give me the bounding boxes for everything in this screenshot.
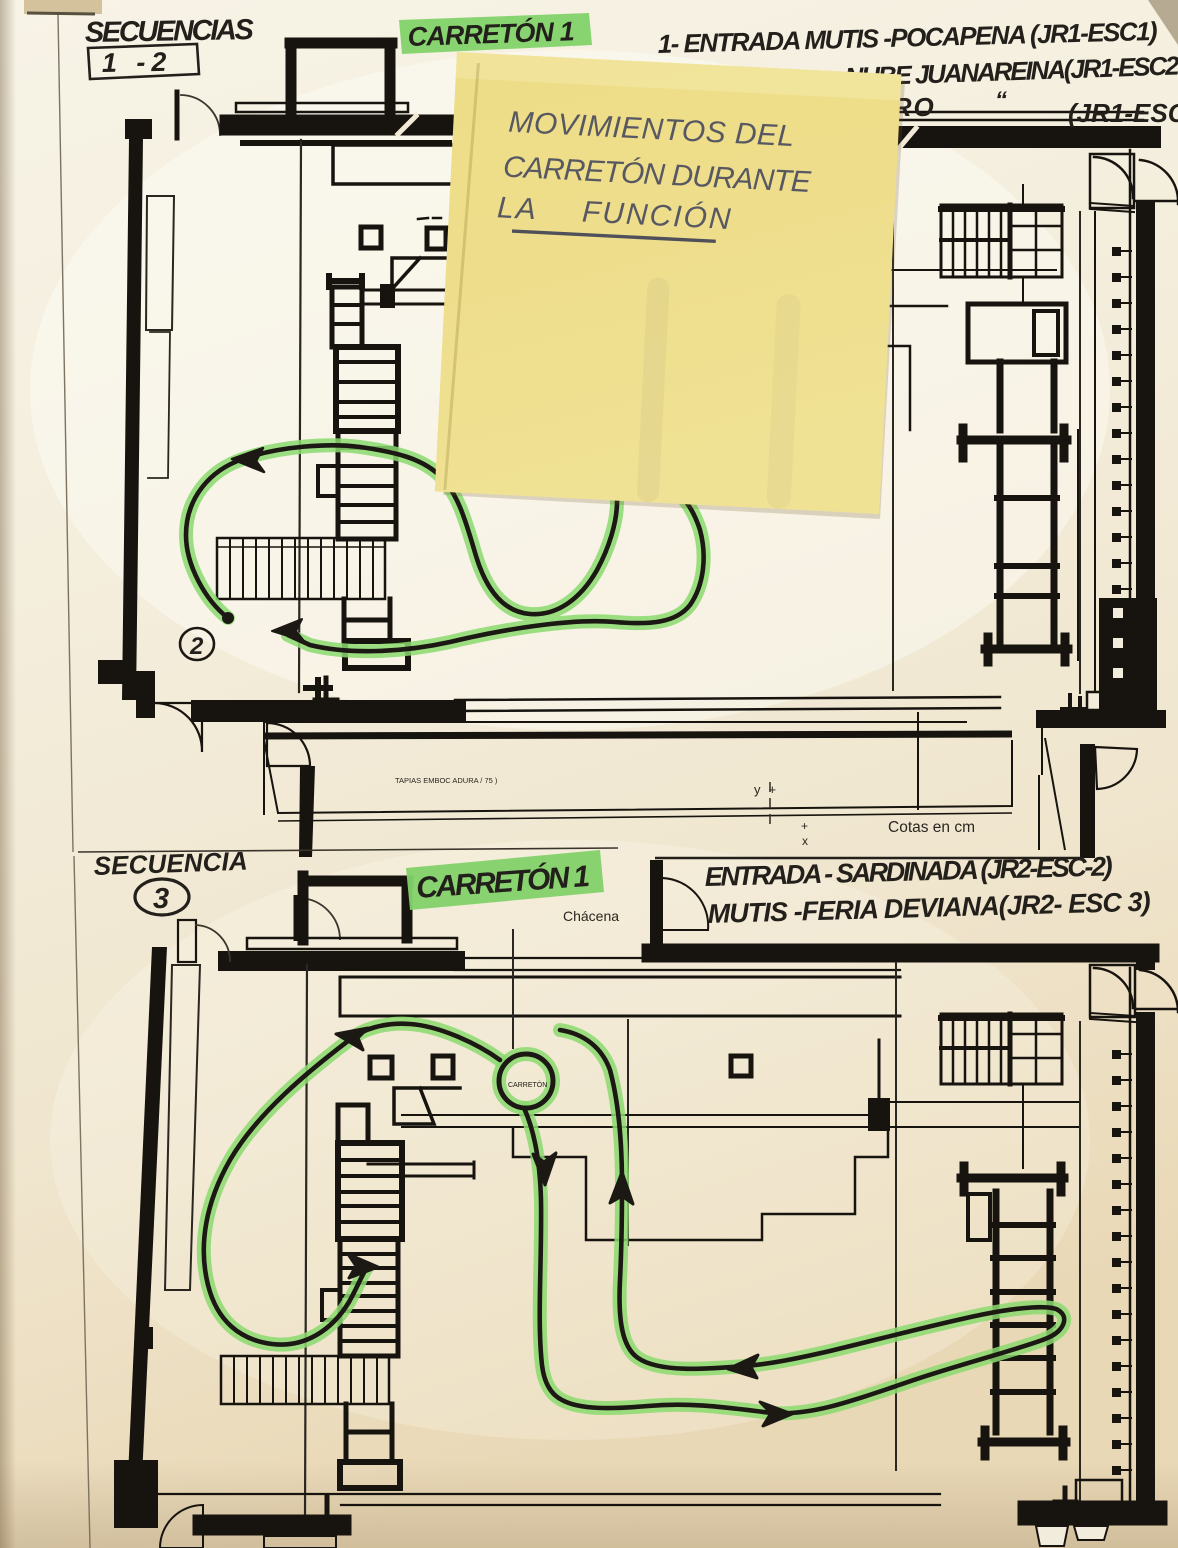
svg-text:SECUENCIA: SECUENCIA [93,846,250,881]
svg-text:2: 2 [189,633,204,660]
svg-text:CARRETÓN 1: CARRETÓN 1 [407,15,576,52]
svg-text:Cotas en cm: Cotas en cm [888,819,975,836]
svg-text:CARRETÓN: CARRETÓN [508,1080,547,1089]
svg-text:x: x [802,834,808,848]
svg-text:1 -2: 1 -2 [102,47,173,78]
svg-text:TAPIAS EMBOC ADURA / 75 ): TAPIAS EMBOC ADURA / 75 ) [395,776,498,785]
svg-text:+: + [801,819,808,833]
svg-text:Chácena: Chácena [563,908,619,924]
svg-text:“: “ [995,87,1007,114]
svg-text:3: 3 [153,883,169,915]
svg-text:(JR1-ESC: (JR1-ESC [1068,98,1178,128]
